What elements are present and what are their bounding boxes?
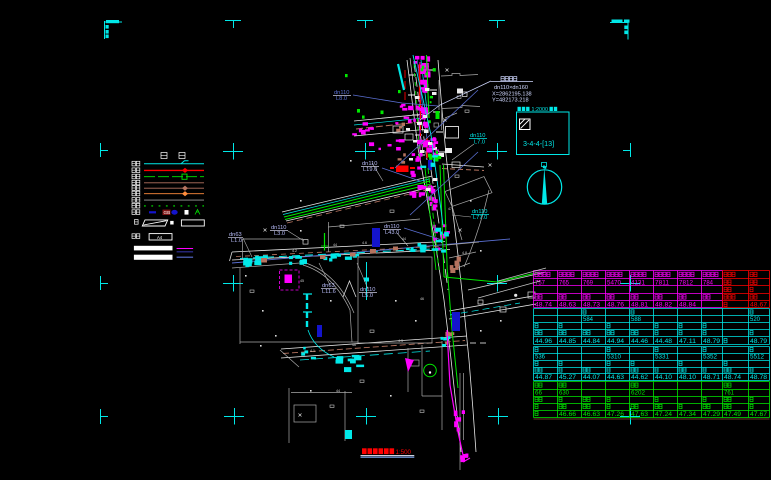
svg-text:48.73: 48.73 — [583, 303, 601, 309]
svg-text:44.62: 44.62 — [631, 375, 649, 381]
svg-text:48.63: 48.63 — [559, 303, 577, 309]
svg-text:48.74: 48.74 — [724, 375, 742, 381]
svg-text:769: 769 — [583, 280, 594, 286]
svg-text:44: 44 — [333, 243, 337, 247]
svg-text:584: 584 — [583, 317, 594, 323]
svg-text:45: 45 — [300, 279, 304, 283]
svg-text:dn110×dn160: dn110×dn160 — [494, 85, 528, 91]
svg-text:47.34: 47.34 — [679, 412, 697, 418]
svg-text:A4: A4 — [157, 235, 163, 240]
svg-text:4.1: 4.1 — [310, 349, 315, 353]
svg-text:44: 44 — [336, 389, 340, 393]
svg-text:48.84: 48.84 — [679, 303, 697, 309]
svg-text:5331: 5331 — [655, 354, 670, 360]
svg-text:66: 66 — [535, 390, 543, 396]
svg-text:5310: 5310 — [607, 354, 622, 360]
svg-text:5512: 5512 — [750, 354, 765, 360]
svg-text:536: 536 — [535, 354, 546, 360]
svg-text:5352: 5352 — [703, 354, 718, 360]
svg-text:1:500: 1:500 — [396, 449, 412, 456]
svg-text:47.49: 47.49 — [724, 412, 742, 418]
svg-text:46: 46 — [420, 297, 424, 301]
svg-text:L8.0: L8.0 — [336, 96, 347, 102]
svg-text:3-4-4-[13]: 3-4-4-[13] — [523, 139, 554, 148]
svg-text:5470: 5470 — [607, 280, 622, 286]
svg-text:44.96: 44.96 — [535, 339, 553, 345]
svg-text:44.87: 44.87 — [535, 375, 553, 381]
svg-text:48.82: 48.82 — [655, 303, 673, 309]
svg-text:L7.0: L7.0 — [474, 140, 485, 146]
svg-text:765: 765 — [559, 280, 570, 286]
svg-text:L3.0: L3.0 — [274, 231, 285, 237]
svg-text:L77.0: L77.0 — [473, 215, 487, 221]
svg-text:761: 761 — [724, 390, 735, 396]
svg-text:4131: 4131 — [631, 280, 646, 286]
svg-text:48.81: 48.81 — [631, 303, 649, 309]
svg-text:7812: 7812 — [679, 280, 694, 286]
svg-text:L5.0: L5.0 — [362, 293, 373, 299]
svg-text:47.26: 47.26 — [607, 412, 625, 418]
svg-text:44.46: 44.46 — [631, 339, 649, 345]
svg-text:47.29: 47.29 — [703, 412, 721, 418]
svg-text:4.3: 4.3 — [398, 339, 403, 343]
svg-text:46: 46 — [352, 343, 356, 347]
svg-text:44.84: 44.84 — [583, 339, 601, 345]
svg-text:44.94: 44.94 — [607, 339, 625, 345]
svg-text:48.79: 48.79 — [750, 339, 768, 345]
svg-text:7811: 7811 — [655, 280, 670, 286]
svg-text:44: 44 — [402, 237, 406, 241]
svg-text:GB: GB — [164, 210, 171, 215]
svg-text:44.85: 44.85 — [559, 339, 577, 345]
svg-text:4.8: 4.8 — [462, 251, 467, 255]
svg-text:45.27: 45.27 — [559, 375, 577, 381]
svg-text:757: 757 — [535, 280, 546, 286]
svg-text:784: 784 — [703, 280, 714, 286]
svg-text:4.2: 4.2 — [292, 249, 297, 253]
svg-text:48.74: 48.74 — [535, 303, 553, 309]
svg-text:48.78: 48.78 — [750, 375, 768, 381]
svg-text:47.67: 47.67 — [750, 412, 768, 418]
svg-text:44.10: 44.10 — [655, 375, 673, 381]
svg-text:48.71: 48.71 — [703, 375, 721, 381]
svg-text:4.6: 4.6 — [362, 241, 367, 245]
svg-text:44.48: 44.48 — [655, 339, 673, 345]
svg-text:47: 47 — [448, 207, 452, 211]
svg-text:630: 630 — [559, 390, 570, 396]
svg-text:6202: 6202 — [631, 390, 646, 396]
svg-text:L1.0: L1.0 — [231, 238, 242, 244]
svg-text:520: 520 — [750, 317, 761, 323]
svg-text:47.63: 47.63 — [631, 412, 649, 418]
svg-text:44.63: 44.63 — [607, 375, 625, 381]
svg-text:588: 588 — [631, 317, 642, 323]
svg-text:48.10: 48.10 — [679, 375, 697, 381]
svg-text:46.66: 46.66 — [559, 412, 577, 418]
svg-text:L19.0: L19.0 — [363, 167, 377, 173]
svg-text:44.07: 44.07 — [583, 375, 601, 381]
svg-text:47.24: 47.24 — [655, 412, 673, 418]
svg-text:48.76: 48.76 — [607, 303, 625, 309]
svg-text:Y=482173.218: Y=482173.218 — [492, 98, 529, 104]
svg-text:46.63: 46.63 — [583, 412, 601, 418]
svg-text:L11.6: L11.6 — [322, 289, 336, 295]
svg-text:48.67: 48.67 — [750, 303, 768, 309]
svg-text:47.11: 47.11 — [679, 339, 697, 345]
svg-text:L43.0: L43.0 — [385, 230, 399, 236]
svg-text:48.79: 48.79 — [703, 339, 721, 345]
